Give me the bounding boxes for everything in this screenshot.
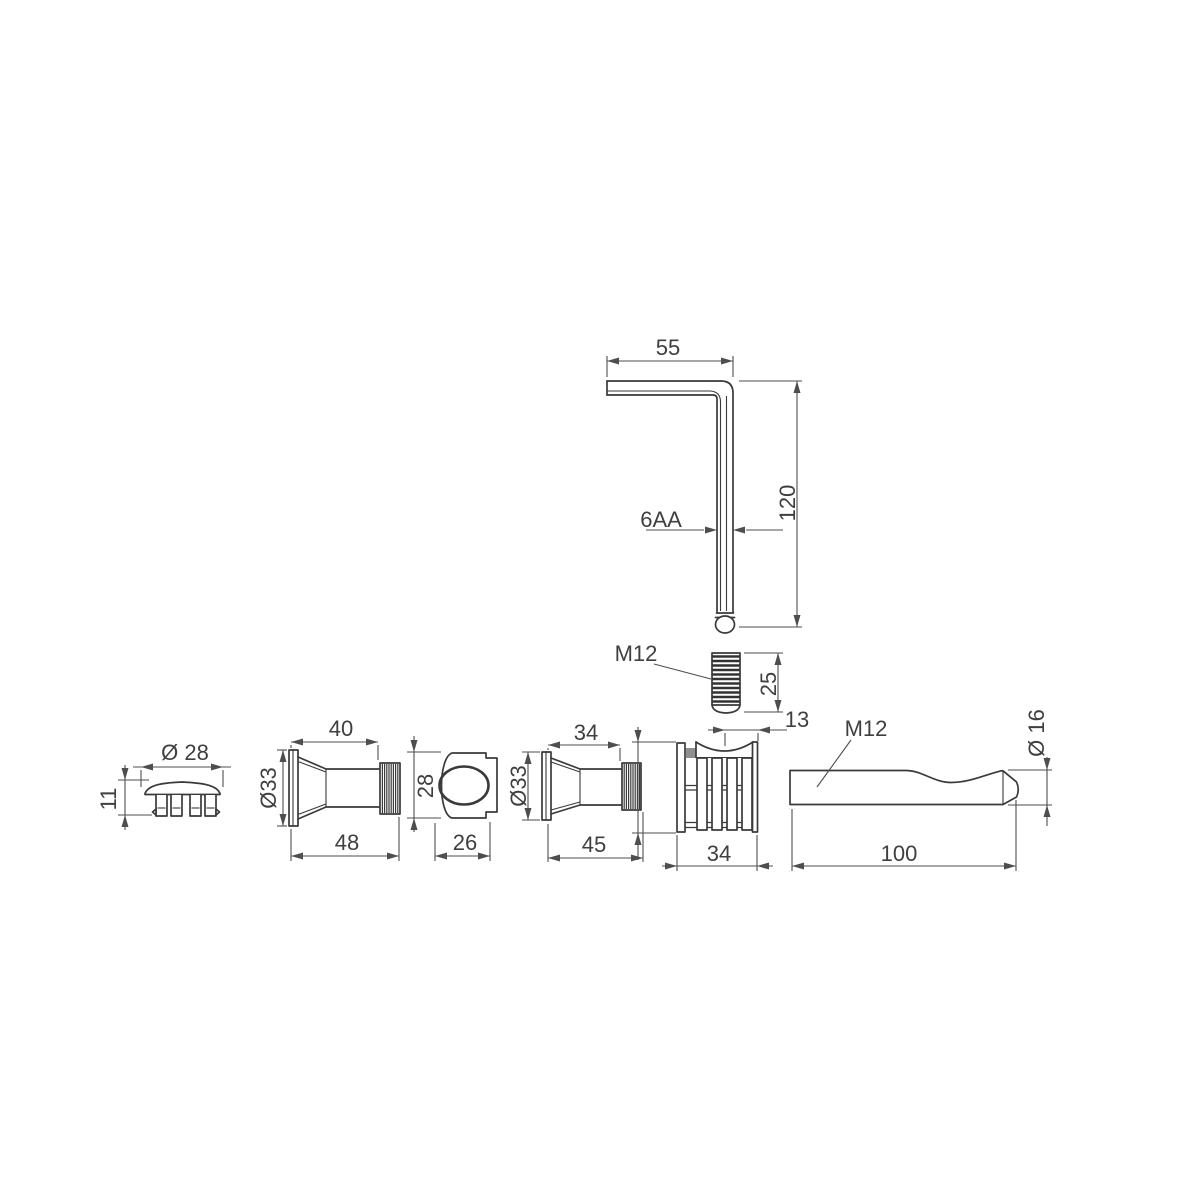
technical-drawing-page: 55 120 6AA M12 bbox=[0, 0, 1200, 1200]
dim-label-dowel-top: 13 bbox=[785, 707, 809, 732]
dim-label-sleeve-large-top: 40 bbox=[329, 716, 353, 741]
dim-label-sleeve-small-top: 34 bbox=[574, 720, 598, 745]
dim-label-sleeve-small-bottom: 45 bbox=[582, 832, 606, 857]
set-screw-drawing bbox=[712, 653, 740, 713]
dim-label-handle-thread: M12 bbox=[845, 716, 888, 741]
dim-label-sleeve-large-diameter: Ø33 bbox=[256, 767, 281, 809]
dim-label-hexkey-height: 120 bbox=[775, 485, 800, 522]
dim-label-handle-diameter: Ø 16 bbox=[1024, 709, 1049, 757]
dim-label-screw-thread: M12 bbox=[615, 641, 658, 666]
lever-handle-dimensions: M12 Ø 16 100 bbox=[792, 709, 1052, 871]
dim-label-handle-length: 100 bbox=[881, 841, 918, 866]
sleeve-large-drawing bbox=[289, 750, 400, 826]
sleeve-small-drawing bbox=[542, 752, 641, 820]
lever-handle-drawing bbox=[790, 771, 1018, 805]
sleeve-large-dimensions: 40 Ø33 48 bbox=[256, 716, 399, 861]
set-screw-dimensions: M12 25 bbox=[615, 641, 783, 712]
cam-housing-drawing bbox=[440, 753, 498, 818]
assembly-technical-drawing: 55 120 6AA M12 bbox=[0, 0, 1200, 1200]
dim-label-hexkey-length: 55 bbox=[656, 335, 680, 360]
dim-label-cap-diameter: Ø 28 bbox=[161, 740, 209, 765]
dim-label-housing-width: 26 bbox=[453, 830, 477, 855]
dim-label-cap-height: 11 bbox=[96, 788, 121, 811]
cover-cap-drawing bbox=[145, 782, 220, 816]
dim-label-sleeve-small-diameter: Ø33 bbox=[506, 765, 531, 807]
dim-label-screw-length: 25 bbox=[756, 672, 781, 696]
dim-label-housing-height: 28 bbox=[413, 774, 438, 798]
dim-label-sleeve-large-bottom: 48 bbox=[335, 830, 359, 855]
dim-label-hexkey-size: 6AA bbox=[640, 507, 682, 532]
dim-label-dowel-width: 34 bbox=[707, 841, 731, 866]
expansion-dowel-drawing bbox=[677, 742, 758, 832]
hex-key-dimensions: 55 120 6AA bbox=[607, 335, 802, 627]
